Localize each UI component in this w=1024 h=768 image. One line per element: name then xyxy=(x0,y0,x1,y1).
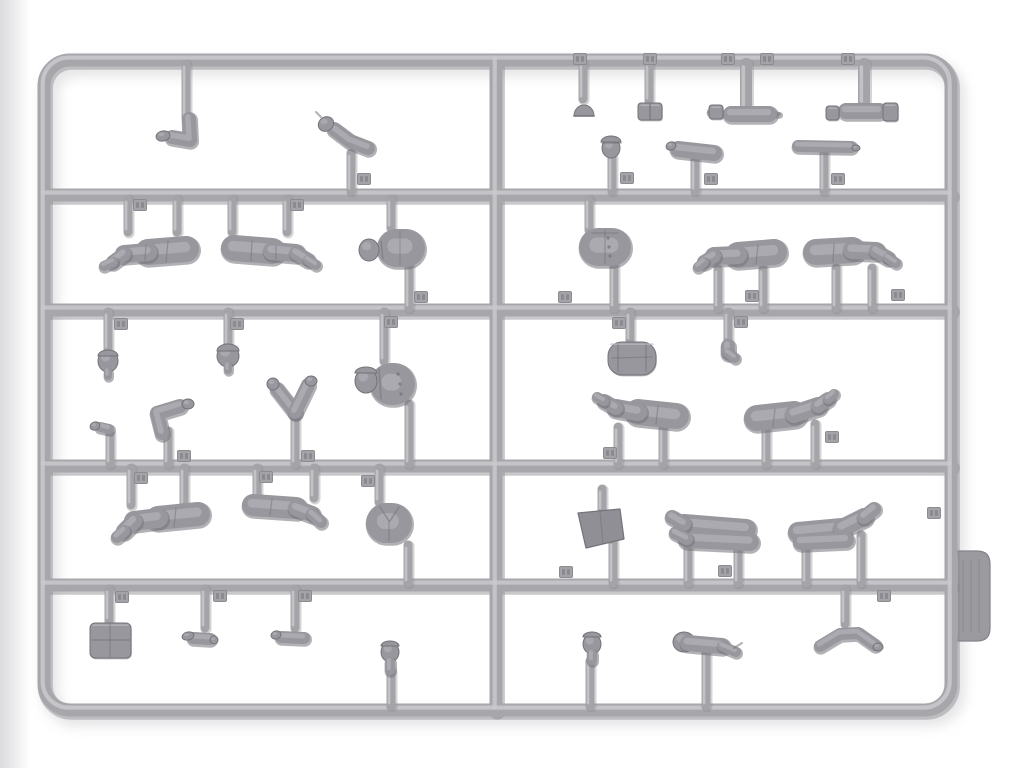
ellipse-highlight xyxy=(211,637,215,640)
tag-digit-mark xyxy=(748,293,751,299)
tag-digit-mark xyxy=(422,294,425,300)
number-tag xyxy=(892,290,905,301)
tag-digit-mark xyxy=(606,450,609,456)
number-tag xyxy=(928,508,941,519)
number-tag xyxy=(415,292,428,303)
tag-digit-mark xyxy=(742,319,745,325)
number-tag xyxy=(115,319,128,330)
part-slender-arm xyxy=(797,144,860,151)
tag-digit-mark xyxy=(828,434,831,440)
number-tag xyxy=(231,319,244,330)
number-tag xyxy=(178,451,191,462)
tag-digit-mark xyxy=(267,474,270,480)
number-tag xyxy=(842,54,855,65)
ellipse-highlight xyxy=(273,632,278,635)
tag-digit-mark xyxy=(707,176,710,182)
limb-highlight xyxy=(192,636,209,637)
tag-digit-mark xyxy=(180,453,183,459)
part-tunic-torso xyxy=(592,230,618,264)
part-backpack xyxy=(90,623,132,659)
tag-digit-mark xyxy=(899,292,902,298)
part-jacket-open xyxy=(380,507,399,541)
part-ellipse xyxy=(210,636,218,644)
part-detail-dot xyxy=(608,254,611,257)
tag-digit-mark xyxy=(417,294,420,300)
limb-highlight xyxy=(800,538,845,540)
number-tag xyxy=(761,54,774,65)
tag-digit-mark xyxy=(930,510,933,516)
ellipse-highlight xyxy=(184,633,189,636)
tag-digit-mark xyxy=(123,594,126,600)
ellipse-highlight xyxy=(184,400,189,404)
number-tag xyxy=(719,566,732,577)
tag-digit-mark xyxy=(628,175,631,181)
tag-digit-mark xyxy=(365,176,368,182)
tag-digit-mark xyxy=(768,56,771,62)
tag-digit-mark xyxy=(763,56,766,62)
tag-digit-mark xyxy=(712,176,715,182)
number-tag xyxy=(826,432,839,443)
number-tag xyxy=(560,567,573,578)
part-ellipse xyxy=(267,378,279,390)
ellipse-highlight xyxy=(269,380,274,385)
part-ellipse xyxy=(873,643,883,651)
tag-digit-mark xyxy=(721,568,724,574)
tag-digit-mark xyxy=(262,474,265,480)
limb-highlight xyxy=(686,537,749,540)
tag-digit-mark xyxy=(611,450,614,456)
tag-digit-mark xyxy=(306,593,309,599)
number-tag xyxy=(604,448,617,459)
tag-digit-mark xyxy=(298,202,301,208)
tag-digit-mark xyxy=(309,453,312,459)
ellipse-highlight xyxy=(92,423,97,426)
tag-digit-mark xyxy=(935,510,938,516)
part-head-with-cap-row2 xyxy=(601,136,621,158)
number-tag xyxy=(358,174,371,185)
number-tag xyxy=(746,291,759,302)
ellipse-highlight xyxy=(668,143,673,146)
number-tag xyxy=(722,54,735,65)
number-tag xyxy=(291,200,304,211)
number-tag xyxy=(705,174,718,185)
tag-digit-mark xyxy=(567,569,570,575)
tag-digit-mark xyxy=(885,593,888,599)
limb-highlight xyxy=(677,147,713,151)
number-tag xyxy=(362,476,375,487)
number-tag xyxy=(878,591,891,602)
tag-digit-mark xyxy=(238,321,241,327)
number-tag xyxy=(644,54,657,65)
tag-digit-mark xyxy=(562,569,565,575)
part-duffel-bag xyxy=(608,342,657,376)
tag-digit-mark xyxy=(137,475,140,481)
tag-digit-mark xyxy=(561,294,564,300)
part-pouch-pair xyxy=(638,103,663,121)
tag-digit-mark xyxy=(646,56,649,62)
ellipse-highlight xyxy=(853,146,857,148)
tag-digit-mark xyxy=(880,593,883,599)
number-tag xyxy=(574,54,587,65)
limb-highlight xyxy=(797,144,850,145)
part-detail-dot xyxy=(398,382,401,385)
part-boot-single xyxy=(727,344,736,359)
tag-digit-mark xyxy=(844,56,847,62)
tag-digit-mark xyxy=(118,594,121,600)
tag-digit-mark xyxy=(387,319,390,325)
number-tag xyxy=(260,472,273,483)
tag-digit-mark xyxy=(221,593,224,599)
number-tag xyxy=(559,292,572,303)
tag-digit-mark xyxy=(369,478,372,484)
part-ellipse xyxy=(359,239,379,261)
part-ellipse xyxy=(852,145,860,151)
tag-digit-mark xyxy=(623,175,626,181)
part-detail-dot xyxy=(396,372,399,375)
tag-digit-mark xyxy=(360,176,363,182)
tag-digit-mark xyxy=(615,320,618,326)
tag-digit-mark xyxy=(304,453,307,459)
tag-digit-mark xyxy=(726,568,729,574)
number-tag xyxy=(116,592,129,603)
tag-digit-mark xyxy=(142,475,145,481)
tag-digit-mark xyxy=(581,56,584,62)
part-bedroll-with-rod xyxy=(708,105,780,120)
tag-digit-mark xyxy=(566,294,569,300)
limb-highlight xyxy=(687,641,721,644)
ellipse-highlight xyxy=(307,377,312,381)
left-vignette xyxy=(0,0,30,768)
tag-digit-mark xyxy=(576,56,579,62)
tag-digit-mark xyxy=(392,319,395,325)
tag-digit-mark xyxy=(651,56,654,62)
tag-digit-mark xyxy=(216,593,219,599)
number-tag xyxy=(299,591,312,602)
tag-digit-mark xyxy=(894,292,897,298)
tag-digit-mark xyxy=(364,478,367,484)
tag-digit-mark xyxy=(839,176,842,182)
tag-digit-mark xyxy=(117,321,120,327)
part-detail-dot xyxy=(607,245,610,248)
part-legs-pair-thighs xyxy=(671,515,751,543)
number-tag xyxy=(832,174,845,185)
tag-digit-mark xyxy=(141,202,144,208)
part-bedroll-with-packs xyxy=(826,103,899,122)
model-kit-sprue-photo xyxy=(0,0,1024,768)
tag-digit-mark xyxy=(724,56,727,62)
part-legs-standing-d xyxy=(815,244,897,265)
tag-digit-mark xyxy=(833,434,836,440)
number-tag xyxy=(385,317,398,328)
tag-digit-mark xyxy=(293,202,296,208)
number-tag xyxy=(134,200,147,211)
part-detail-dot xyxy=(606,236,609,239)
number-tag xyxy=(621,173,634,184)
tag-digit-mark xyxy=(233,321,236,327)
tag-digit-mark xyxy=(753,293,756,299)
part-detail-dot xyxy=(399,392,402,395)
tag-digit-mark xyxy=(136,202,139,208)
number-tag xyxy=(735,317,748,328)
limb-highlight xyxy=(280,635,303,636)
tag-digit-mark xyxy=(729,56,732,62)
number-tag xyxy=(613,318,626,329)
tag-digit-mark xyxy=(620,320,623,326)
part-ellipse xyxy=(182,399,194,409)
number-tag xyxy=(214,591,227,602)
number-tag xyxy=(135,473,148,484)
ellipse-highlight xyxy=(362,242,371,251)
tag-digit-mark xyxy=(834,176,837,182)
tag-digit-mark xyxy=(737,319,740,325)
part-ellipse xyxy=(305,376,317,386)
number-tag xyxy=(302,451,315,462)
ellipse-highlight xyxy=(586,637,594,645)
tag-digit-mark xyxy=(849,56,852,62)
ellipse-highlight xyxy=(875,644,880,647)
tag-digit-mark xyxy=(185,453,188,459)
ellipse-highlight xyxy=(320,119,327,125)
tag-digit-mark xyxy=(122,321,125,327)
sprue-photo-stage xyxy=(0,0,1024,768)
ellipse-highlight xyxy=(158,132,164,136)
tag-digit-mark xyxy=(301,593,304,599)
